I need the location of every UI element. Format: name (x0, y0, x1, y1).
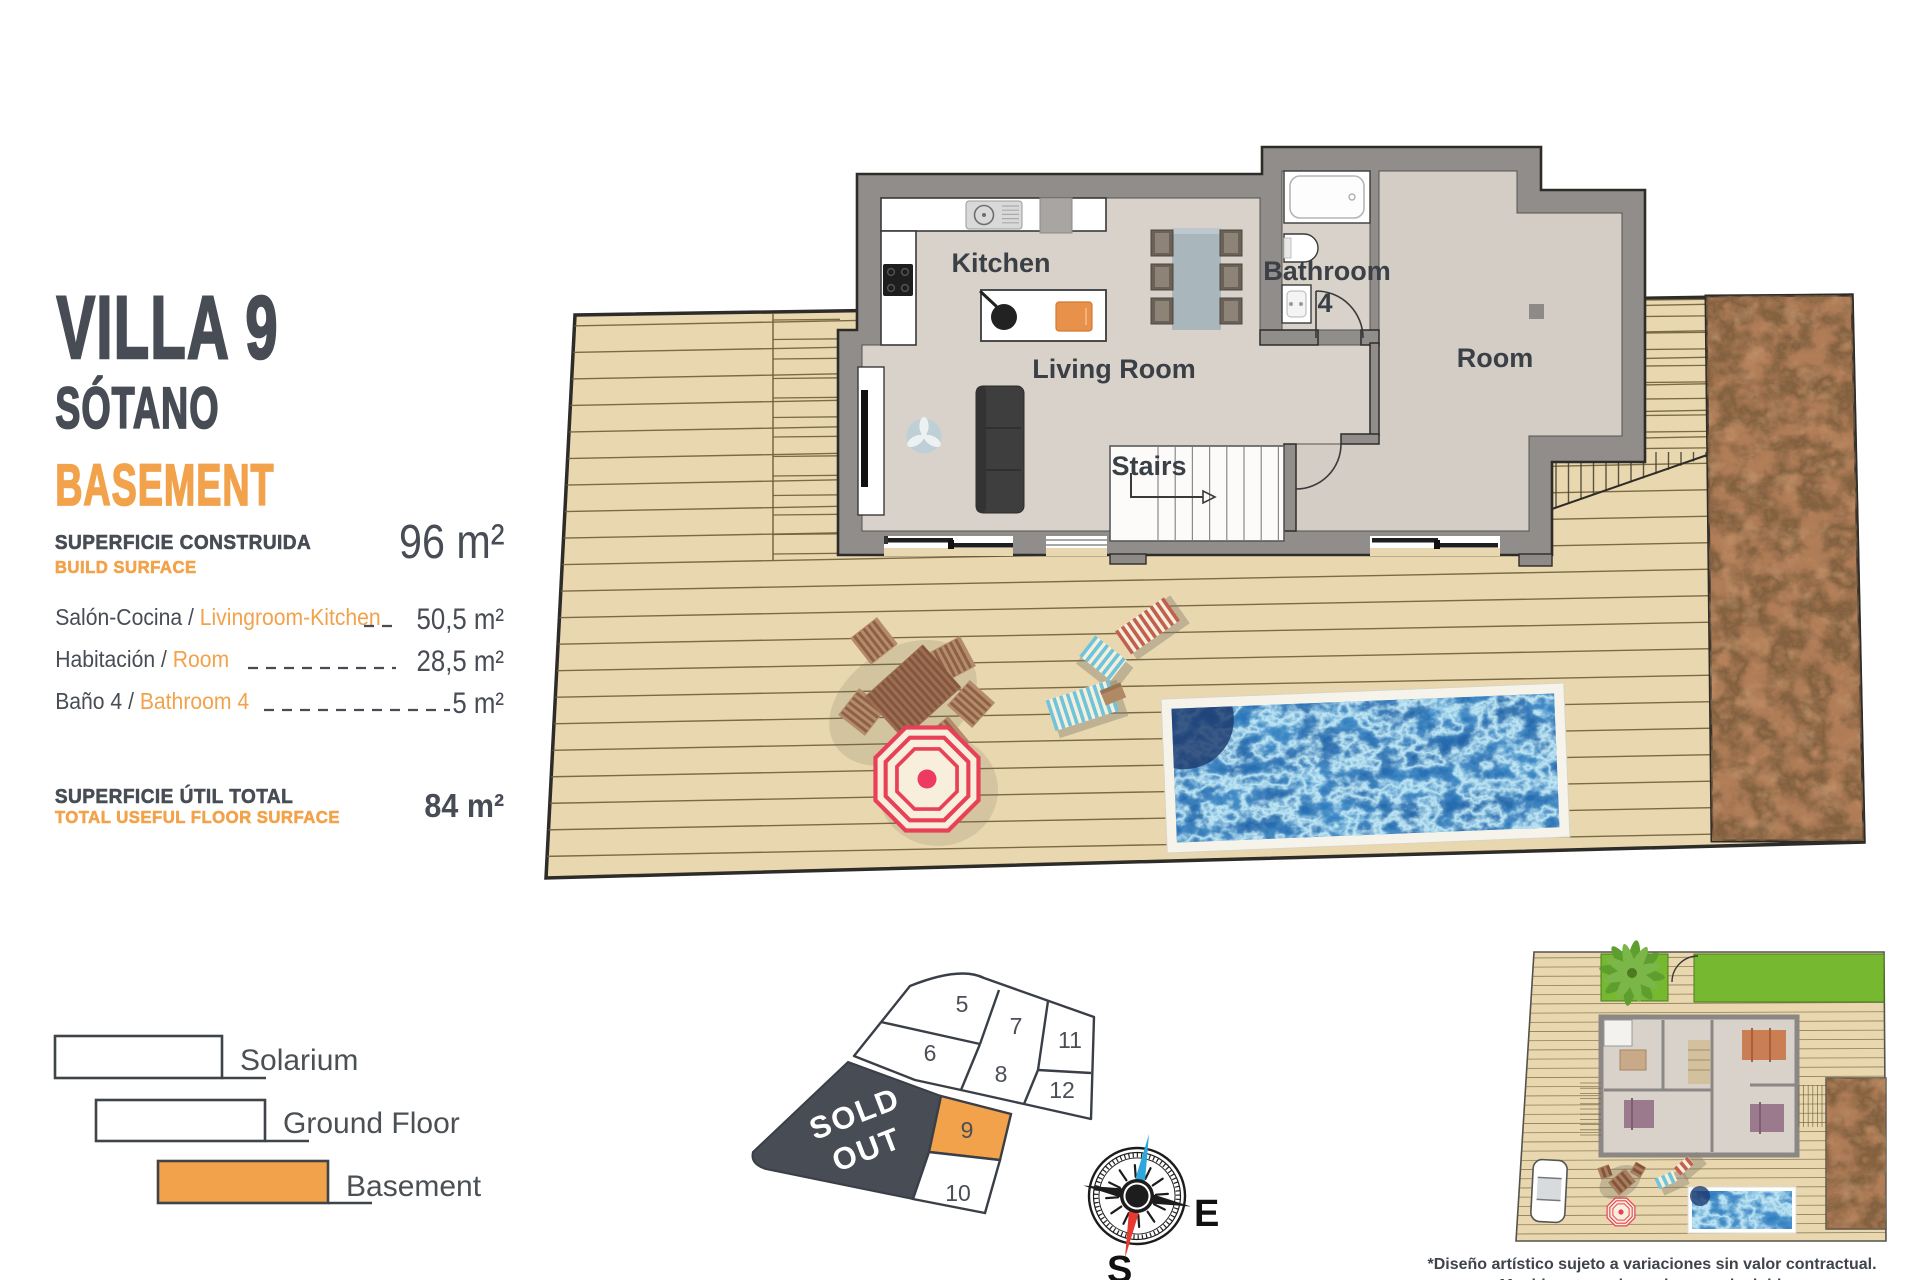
svg-text:5: 5 (956, 991, 969, 1017)
svg-text:SUPERFICIE CONSTRUIDA: SUPERFICIE CONSTRUIDA (55, 531, 311, 554)
svg-text:12: 12 (1049, 1077, 1075, 1103)
svg-text:84 m²: 84 m² (424, 787, 504, 824)
svg-text:Ground Floor: Ground Floor (283, 1107, 460, 1140)
svg-text:SÓTANO: SÓTANO (55, 376, 219, 441)
svg-text:SUPERFICIE ÚTIL TOTAL: SUPERFICIE ÚTIL TOTAL (55, 783, 293, 808)
svg-text:Stairs: Stairs (1111, 451, 1186, 481)
svg-text:5 m²: 5 m² (452, 686, 504, 719)
svg-text:Baño 4 / Bathroom 4: Baño 4 / Bathroom 4 (55, 688, 249, 714)
svg-text:Solarium: Solarium (240, 1044, 358, 1077)
svg-text:10: 10 (945, 1180, 971, 1206)
svg-text:Basement: Basement (346, 1170, 482, 1203)
svg-text:Salón-Cocina / Livingroom-Kitc: Salón-Cocina / Livingroom-Kitchen (55, 604, 380, 630)
svg-text:7: 7 (1010, 1013, 1023, 1039)
svg-text:TOTAL USEFUL FLOOR SURFACE: TOTAL USEFUL FLOOR SURFACE (55, 806, 340, 827)
svg-text:VILLA 9: VILLA 9 (57, 277, 279, 377)
svg-text:E: E (1194, 1193, 1219, 1235)
svg-text:Living Room: Living Room (1032, 354, 1196, 384)
svg-text:S: S (1107, 1249, 1132, 1280)
svg-text:50,5 m²: 50,5 m² (417, 602, 504, 635)
svg-text:Room: Room (1457, 343, 1534, 373)
svg-text:96 m²: 96 m² (399, 515, 505, 569)
svg-text:8: 8 (995, 1061, 1008, 1087)
svg-text:Bathroom: Bathroom (1263, 256, 1391, 286)
svg-text:BASEMENT: BASEMENT (55, 454, 274, 518)
svg-text:28,5 m²: 28,5 m² (417, 644, 504, 677)
svg-text:Kitchen: Kitchen (951, 248, 1050, 278)
svg-text:*Diseño artístico sujeto a var: *Diseño artístico sujeto a variaciones s… (1427, 1256, 1876, 1273)
svg-text:Habitación / Room: Habitación / Room (55, 646, 229, 672)
svg-text:4: 4 (1317, 288, 1332, 318)
svg-text:11: 11 (1058, 1027, 1082, 1053)
svg-text:9: 9 (961, 1117, 974, 1143)
svg-text:6: 6 (924, 1040, 937, 1066)
svg-text:BUILD SURFACE: BUILD SURFACE (55, 556, 197, 577)
